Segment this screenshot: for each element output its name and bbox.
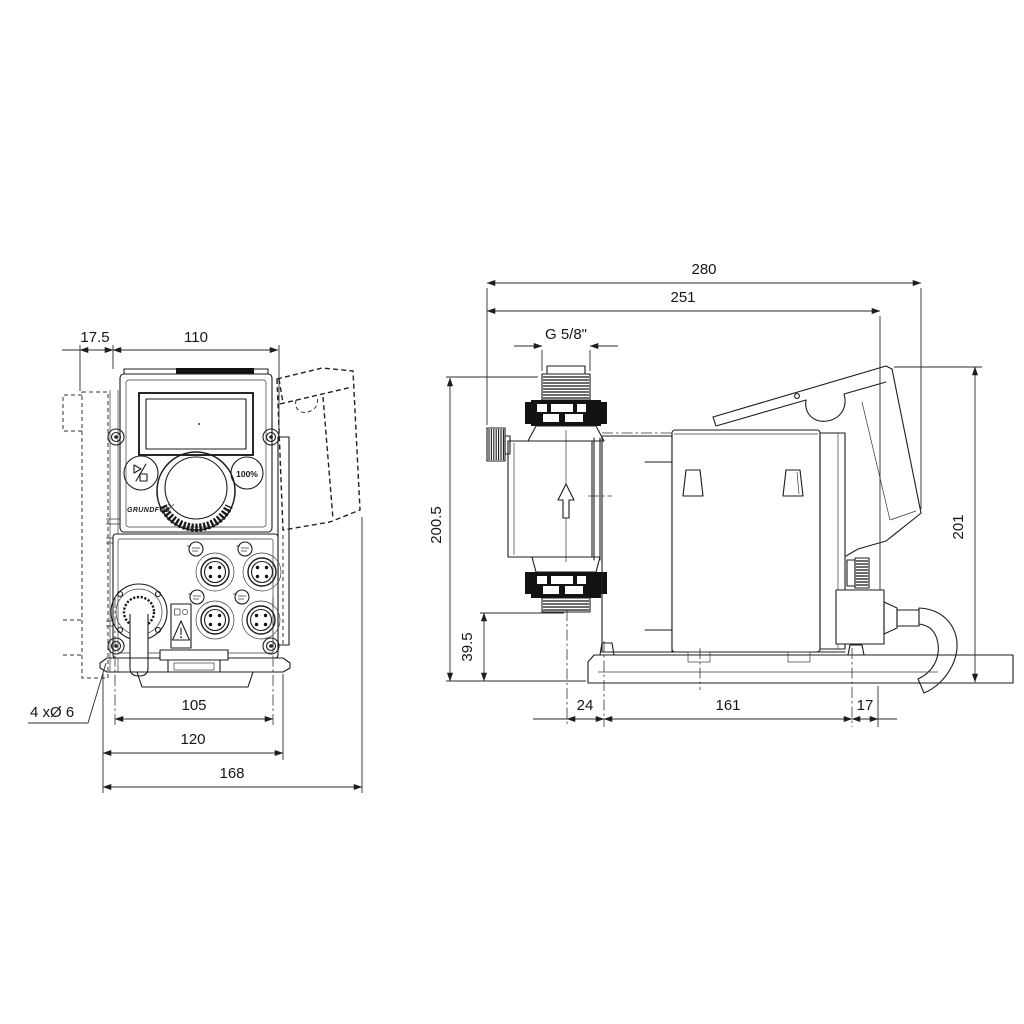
dim-overall-height-200-5: 200.5 — [428, 506, 445, 544]
dim-valve-height-39-5: 39.5 — [459, 632, 476, 661]
bottom-union-nut — [525, 572, 607, 598]
mains-cable — [130, 614, 148, 676]
dim-overall-width-168: 168 — [219, 765, 244, 782]
control-panel: 100% GRUNDFOS — [120, 368, 272, 532]
dim-thread-g58: G 5/8" — [545, 326, 587, 343]
capacity-button-label: 100% — [236, 469, 258, 479]
dim-cube-height-201: 201 — [950, 514, 967, 539]
dim-width-110: 110 — [184, 329, 208, 346]
dim-body-depth-251: 251 — [670, 289, 695, 306]
dim-holes-callout: 4 xØ 6 — [30, 704, 74, 721]
dim-overall-depth-280: 280 — [691, 261, 716, 278]
dim-offset-17-5: 17.5 — [80, 329, 109, 346]
dim-foot-pitch-161: 161 — [715, 697, 740, 714]
top-union-nut — [525, 400, 607, 426]
dimensional-drawing-page: 100% GRUNDFOS — [0, 0, 1024, 1024]
dim-hole-pitch-105: 105 — [181, 697, 206, 714]
mounting-bracket — [160, 650, 228, 660]
pump-dimensional-drawing: 100% GRUNDFOS — [0, 0, 1024, 1024]
dim-plate-width-120: 120 — [180, 731, 205, 748]
dim-foot-end-17: 17 — [857, 697, 874, 714]
brand-text: GRUNDFOS — [127, 507, 170, 514]
dim-foot-offset-24: 24 — [577, 697, 594, 714]
